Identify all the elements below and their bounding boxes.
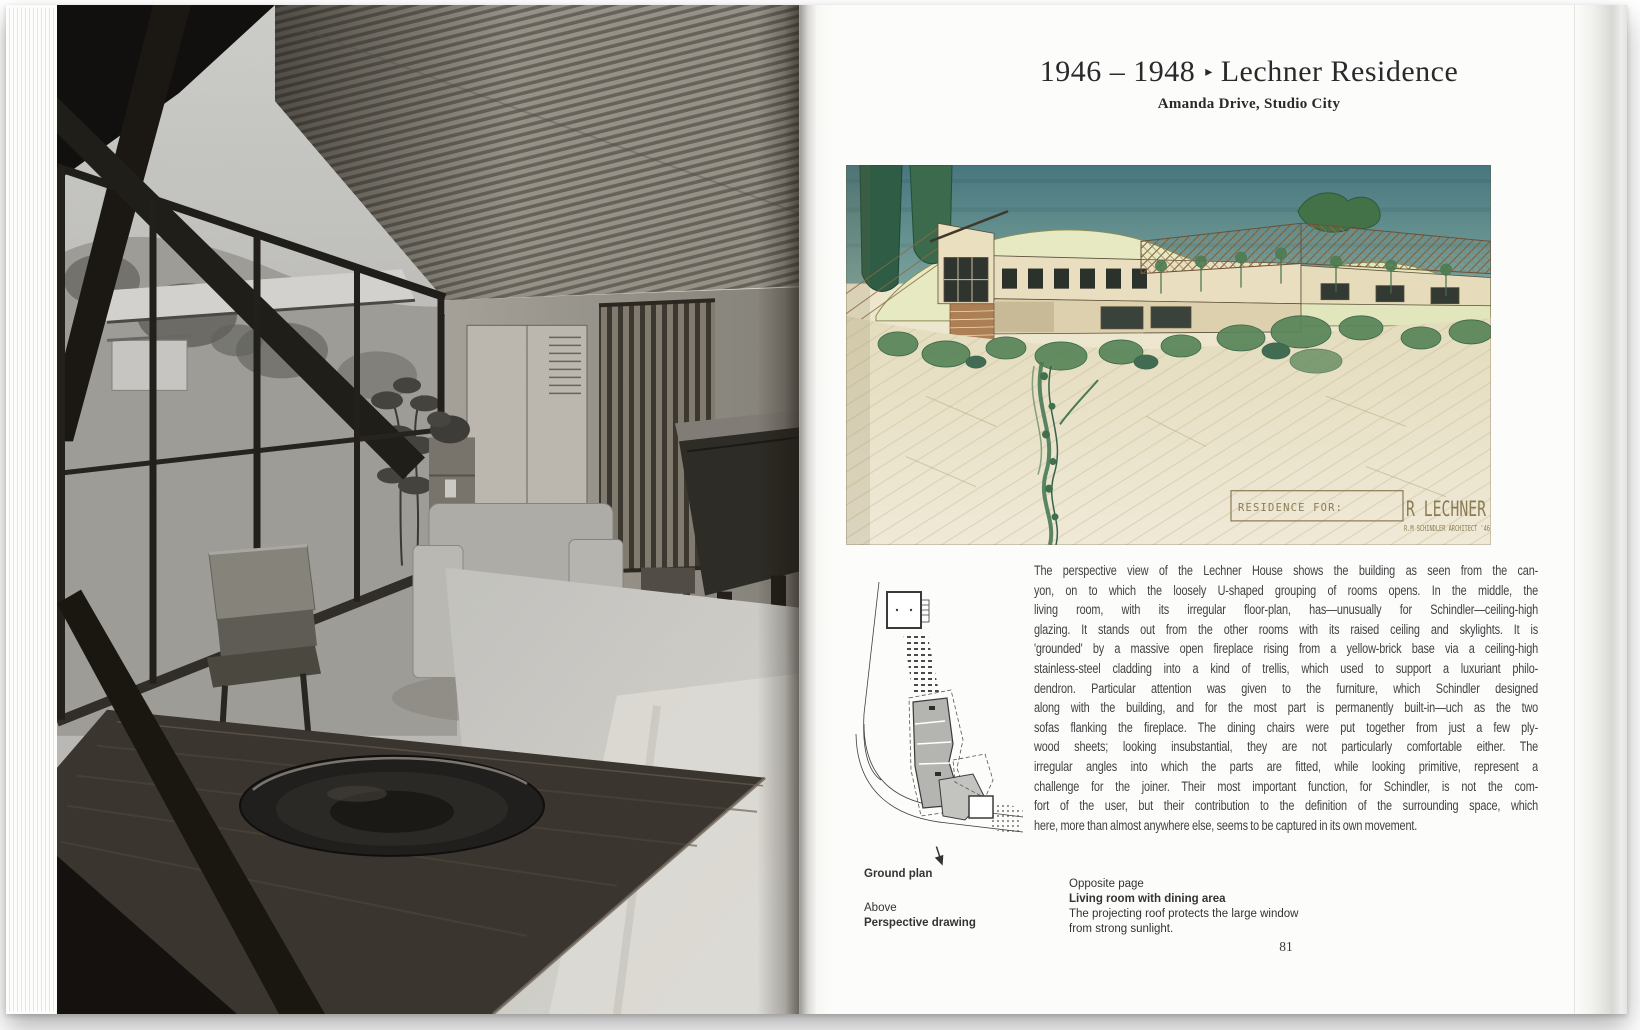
body-line: wood sheets; looking insubstantial, they… [1034,737,1538,757]
caption-ground-plan: Ground plan [864,867,976,882]
interior-photo [57,5,799,1014]
caption-opposite-page: Opposite page [1069,877,1298,892]
body-line: stainless-steel cladding into a kind of … [1034,659,1538,679]
page-title: 1946 – 1948▸Lechner Residence [949,55,1549,89]
caption-roof-note-1: The projecting roof protects the large w… [1069,907,1298,922]
body-line: here, more than almost anywhere else, se… [1034,816,1538,836]
left-page-edges [6,8,57,1011]
body-line: fort of the user, but their contribution… [1034,796,1538,816]
body-line: challenge for the joiner. Their most imp… [1034,777,1538,797]
body-line: 'grounded' by a massive open fireplace r… [1034,639,1538,659]
book-spread-photograph: 1946 – 1948▸Lechner Residence Amanda Dri… [0,0,1640,1030]
chapter-heading: 1946 – 1948▸Lechner Residence Amanda Dri… [949,55,1549,113]
perspective-drawing-art: RESIDENCE FOR: R LECHNER R.M SCHINDLER A… [846,165,1491,545]
caption-perspective-drawing: Perspective drawing [864,916,976,931]
drawing-label-credit: R.M SCHINDLER ARCHITECT '46 [1404,524,1490,533]
terrace-steps [903,632,939,694]
right-captions: Opposite page Living room with dining ar… [1069,877,1298,937]
property-line [864,582,881,780]
page-subtitle: Amanda Drive, Studio City [949,96,1549,113]
caption-above: Above [864,901,976,916]
body-line: sofas flanking the fireplace. The dining… [1034,718,1538,738]
title-name: Lechner Residence [1221,55,1459,88]
body-text: The perspective view of the Lechner Hous… [1034,561,1538,835]
photo-grain [57,5,799,1014]
right-page-edges [1574,5,1627,1014]
planting-area [991,802,1023,834]
page-curve-shading [846,165,870,545]
body-line: living room, with its irregular floor-pl… [1034,600,1538,620]
page-number: 81 [1034,939,1538,955]
body-line: dendron. Particular attention was given … [1034,679,1538,699]
left-page [57,5,799,1014]
title-separator-icon: ▸ [1205,64,1213,81]
right-page: 1946 – 1948▸Lechner Residence Amanda Dri… [799,5,1627,1014]
caption-roof-note-2: from strong sunlight. [1069,922,1298,937]
perspective-drawing: RESIDENCE FOR: R LECHNER R.M SCHINDLER A… [846,165,1491,545]
left-captions: Ground plan Above Perspective drawing [864,867,976,931]
body-line: glazing. It stands out from the other ro… [1034,620,1538,640]
body-line: along with the building, and for the mos… [1034,698,1538,718]
drawing-label-large: R LECHNER [1406,496,1486,521]
garage [887,592,921,628]
body-line: yon, on to which the loosely U-shaped gr… [1034,581,1538,601]
open-book: 1946 – 1948▸Lechner Residence Amanda Dri… [6,5,1627,1014]
body-line: irregular angles into which the parts ar… [1034,757,1538,777]
caption-living-room: Living room with dining area [1069,892,1298,907]
ground-plan-art [851,574,1026,839]
drawing-label-small: RESIDENCE FOR: [1238,502,1343,514]
title-years: 1946 – 1948 [1040,55,1196,88]
ground-plan-drawing [851,574,1026,839]
body-line: The perspective view of the Lechner Hous… [1034,561,1538,581]
outbuilding [969,796,993,818]
